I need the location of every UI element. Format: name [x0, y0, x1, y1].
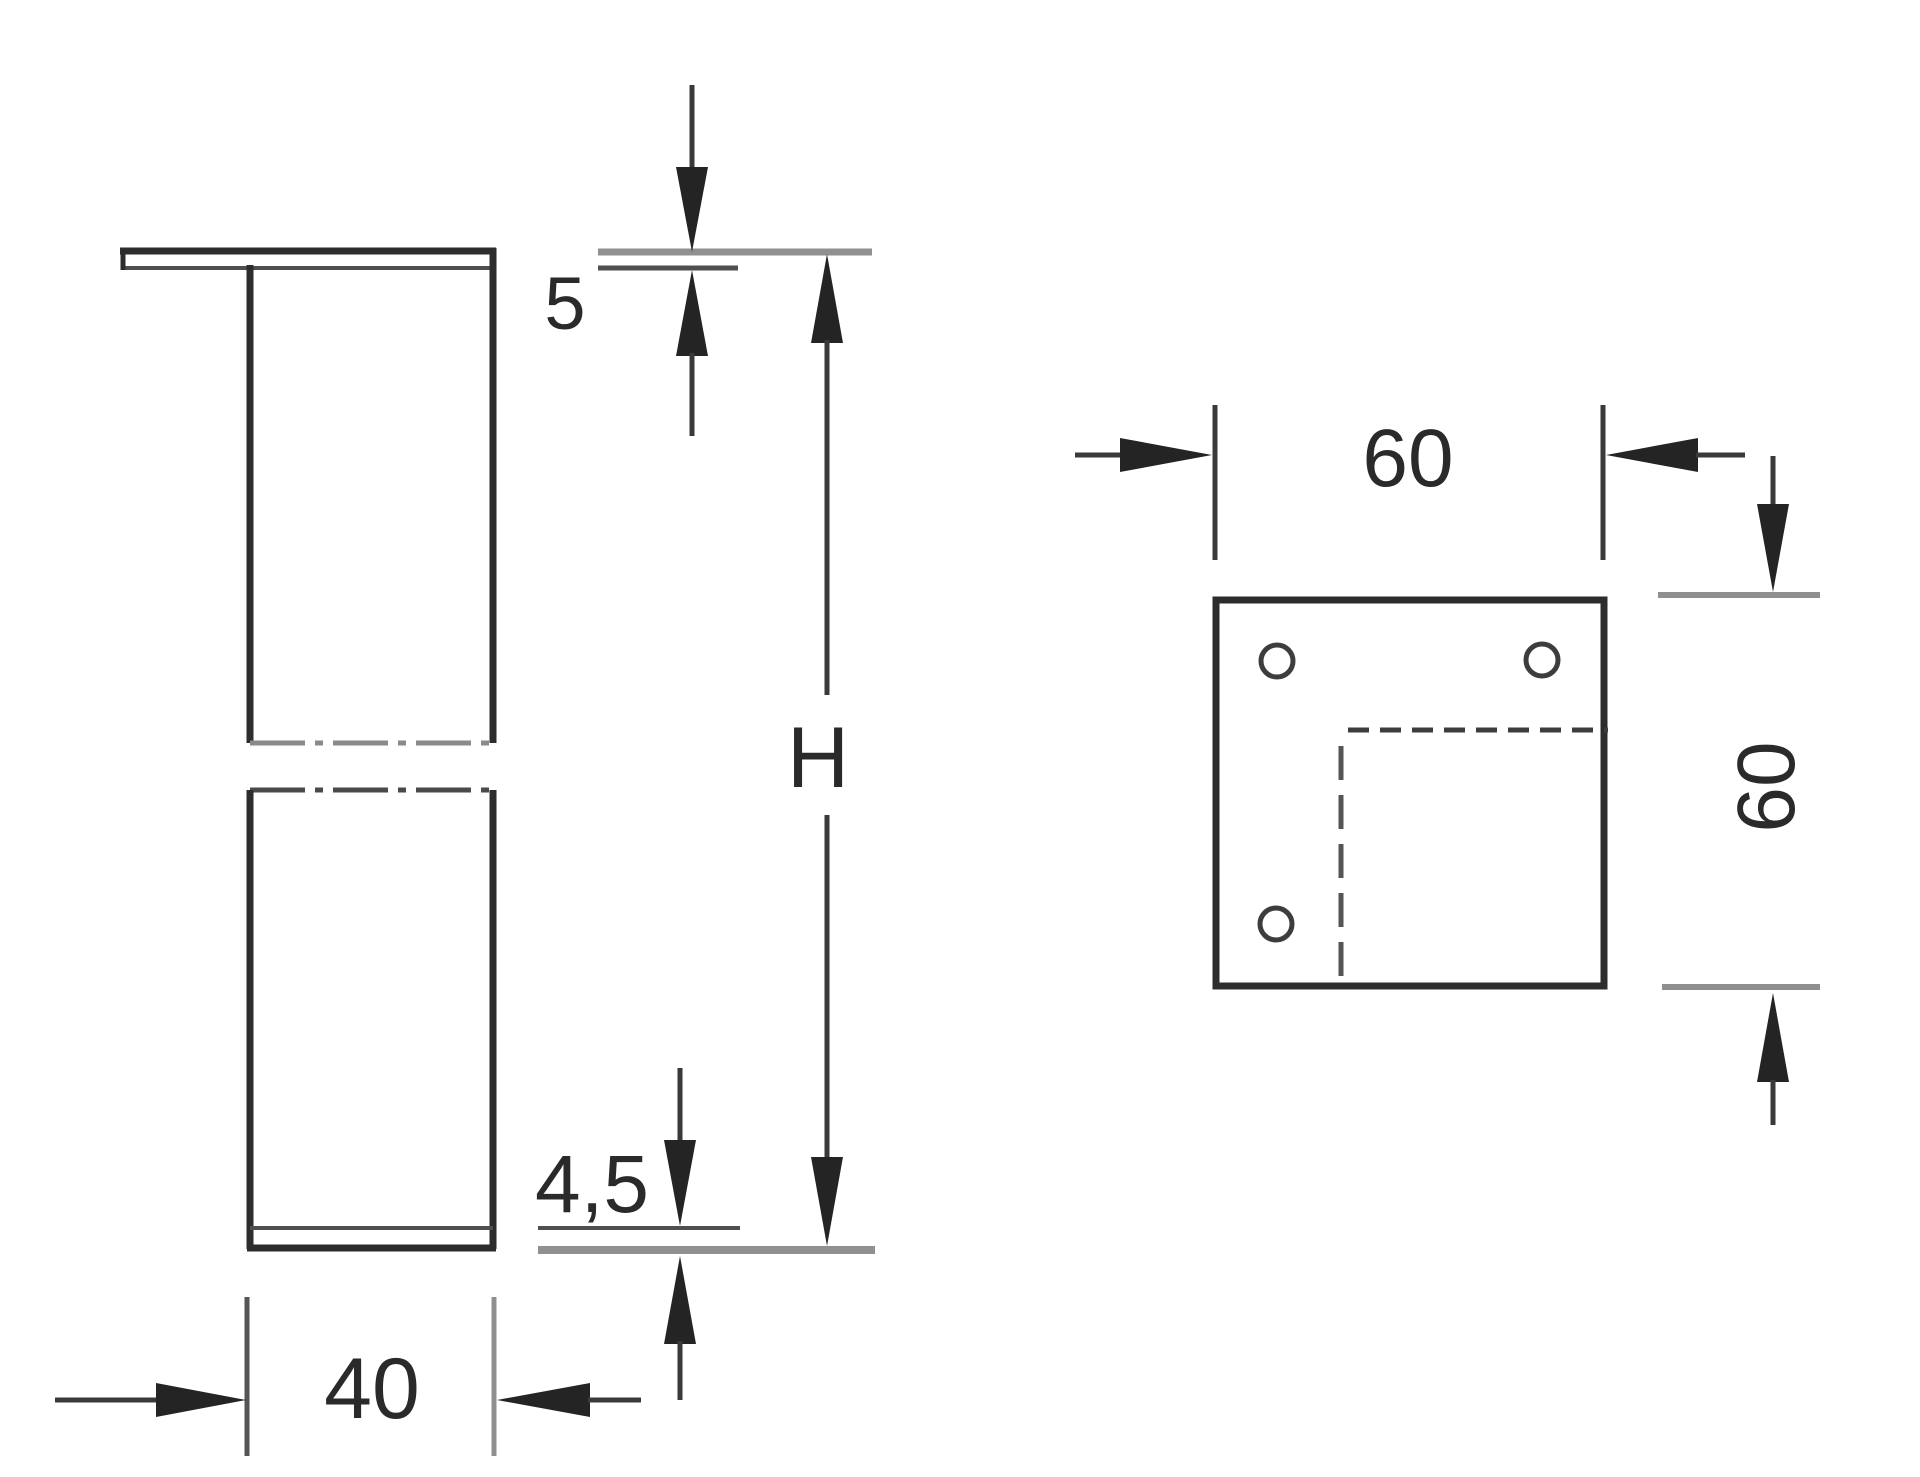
hidden-leg-outline	[1341, 730, 1608, 983]
dim-label-plate-depth: 60	[1721, 741, 1812, 832]
mounting-plate-outline	[1216, 600, 1604, 986]
top-view: 60 60	[1075, 405, 1820, 1125]
dim60w-arrow-left-icon	[1606, 438, 1698, 472]
dim45-arrow-up-icon	[664, 1256, 696, 1344]
dim40-arrow-right-icon	[156, 1383, 246, 1417]
dim60d-arrow-up-icon	[1757, 993, 1789, 1082]
technical-drawing-page: 5 H 4,5	[0, 0, 1920, 1477]
dim-label-leg-height: H	[787, 710, 849, 806]
dim-label-foot-thickness: 4,5	[535, 1139, 649, 1230]
dim45-arrow-down-icon	[664, 1140, 696, 1226]
screw-hole-top-right	[1526, 644, 1558, 676]
screw-hole-top-left	[1261, 645, 1293, 677]
dim5-arrow-down-icon	[676, 167, 708, 252]
dimH-arrow-down-icon	[811, 1157, 843, 1246]
dimension-leg-height: H	[787, 254, 849, 1246]
dim5-arrow-up-icon	[676, 270, 708, 356]
dim-label-plate-thickness: 5	[544, 262, 585, 345]
screw-holes	[1260, 644, 1558, 940]
dim60d-arrow-down-icon	[1757, 504, 1789, 592]
side-view: 5 H 4,5	[55, 85, 875, 1456]
dimension-plate-thickness: 5	[544, 85, 872, 436]
dimension-foot-thickness: 4,5	[535, 1068, 875, 1400]
dim40-arrow-left-icon	[497, 1383, 590, 1417]
dimension-plate-depth: 60	[1658, 456, 1820, 1125]
dim-label-plate-width: 60	[1362, 413, 1453, 504]
dimH-arrow-up-icon	[811, 254, 843, 343]
dimension-leg-width: 40	[55, 1297, 641, 1456]
leg-body	[247, 248, 496, 1249]
dim60w-arrow-right-icon	[1120, 438, 1212, 472]
dim-label-leg-width: 40	[324, 1341, 420, 1437]
dimension-plate-width: 60	[1075, 405, 1745, 560]
mounting-plate-lip	[120, 248, 496, 270]
technical-drawing-canvas: 5 H 4,5	[0, 0, 1920, 1477]
screw-hole-bottom-left	[1260, 908, 1292, 940]
